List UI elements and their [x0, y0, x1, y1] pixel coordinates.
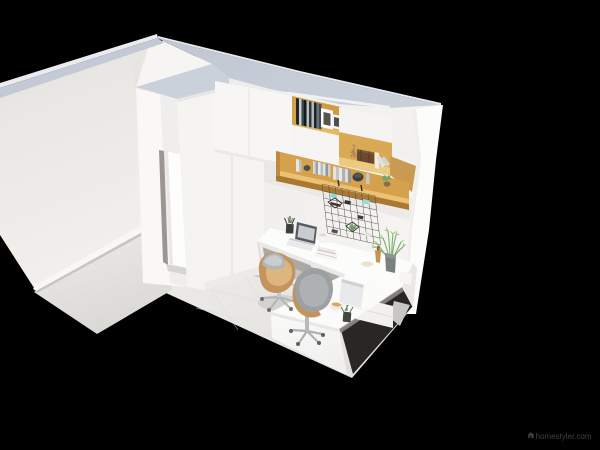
svg-text:homestyler.com: homestyler.com [536, 432, 592, 441]
